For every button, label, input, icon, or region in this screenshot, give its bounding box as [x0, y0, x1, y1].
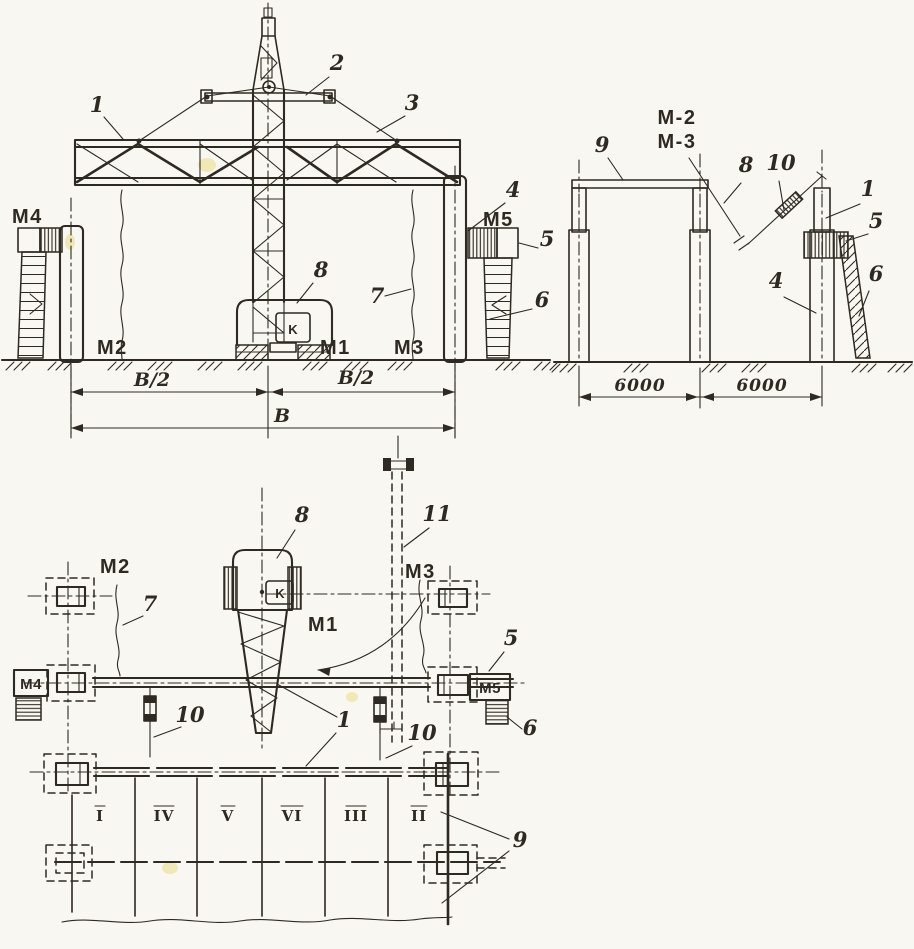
- anchor-block-m2: [28, 578, 112, 614]
- front-elevation-view: B/2 B/2 B M4 M2 M5: [2, 3, 558, 438]
- callout-5-plan: 5: [504, 625, 519, 650]
- callout-1-plan: 1: [337, 707, 352, 732]
- winch-box-m4-plan: M4: [14, 670, 48, 720]
- callout-7-front: 7: [370, 283, 385, 308]
- tie-rod-left: [144, 687, 156, 757]
- bay-number-1: I: [96, 807, 104, 825]
- crane-erection-drawing-sheet: B/2 B/2 B M4 M2 M5: [0, 0, 914, 949]
- bay-number-5: III: [344, 807, 368, 825]
- mark-m4-plan: M4: [20, 676, 42, 693]
- side-elevation-view: 6000 6000 9 M-2 M-3 8 10 1 5 4 6: [552, 107, 912, 408]
- mark-m4-front: M4: [12, 206, 43, 228]
- callout-6-plan: 6: [523, 715, 538, 740]
- dimension-lines-front: B/2 B/2 B: [71, 364, 455, 438]
- slewing-arc: [317, 598, 425, 676]
- bay-number-2: IV: [154, 807, 175, 825]
- mark-m3-plan: M3: [405, 561, 436, 583]
- callout-2-front: 2: [329, 50, 345, 75]
- column-middle-side: [690, 188, 710, 362]
- mark-m2-front: M2: [97, 337, 128, 359]
- callout-8-plan: 8: [294, 502, 310, 527]
- callout-7-plan: 7: [143, 591, 158, 616]
- dim-6000-right: 6000: [736, 376, 787, 396]
- tie-rod-right: [374, 687, 401, 760]
- bay-number-3: V: [221, 807, 235, 825]
- winch-assembly-m4: M4: [12, 198, 83, 438]
- dim-b2-left: B/2: [133, 369, 170, 391]
- callout-8-front: 8: [313, 257, 329, 282]
- callout-10-plan-left: 10: [175, 702, 205, 727]
- mark-m5-front: M5: [483, 209, 514, 231]
- bay-number-6: II: [411, 807, 427, 825]
- dim-6000-left: 6000: [614, 376, 665, 396]
- mark-m1-front: M1: [320, 337, 351, 359]
- mark-m5-plan: M5: [479, 680, 501, 697]
- callout-6-side: 6: [869, 261, 884, 286]
- callout-1-front: 1: [90, 92, 105, 117]
- callouts-side: 9 M-2 M-3 8 10 1 5 4 6: [595, 107, 884, 316]
- callout-5-side: 5: [869, 208, 884, 233]
- column-right-side: [810, 188, 834, 362]
- callout-9-plan: 9: [513, 827, 528, 852]
- winch-box-m5-plan: M5: [470, 674, 510, 724]
- ground-line-side: [552, 362, 912, 372]
- callout-9-side: 9: [595, 132, 610, 157]
- mark-m1-plan: M1: [308, 614, 339, 636]
- callout-8-side: 8: [738, 152, 754, 177]
- label-k-cab-front: K: [288, 322, 298, 337]
- dimension-lines-side: 6000 6000: [579, 366, 822, 408]
- mark-m3-front: M3: [394, 337, 425, 359]
- anchor-block-m3: [428, 581, 477, 614]
- dim-b-total: B: [273, 405, 290, 427]
- axis-lines-plan: [24, 436, 528, 795]
- anchor-block-grid-top-right: [424, 752, 478, 795]
- callout-4-side: 4: [769, 268, 784, 293]
- dim-b2-right: B/2: [337, 367, 374, 389]
- mark-m2-side: M-2: [658, 107, 697, 129]
- callout-1-side: 1: [861, 176, 876, 201]
- anchor-block-grid-top-left: [44, 754, 96, 793]
- column-left-side: [569, 188, 589, 362]
- label-k-cab-plan: K: [275, 586, 285, 601]
- callout-10-side: 10: [766, 150, 796, 175]
- building-grid: I IV V VI III II: [55, 754, 500, 924]
- callout-4-front: 4: [506, 177, 521, 202]
- callout-5-front: 5: [540, 226, 555, 251]
- mark-m3-side: M-3: [658, 131, 697, 153]
- bay-number-4: VI: [281, 807, 303, 825]
- callout-3-front: 3: [405, 90, 420, 115]
- tower-mast: [253, 3, 284, 356]
- mark-m2-plan: M2: [100, 556, 131, 578]
- engineering-drawing: B/2 B/2 B M4 M2 M5: [0, 0, 914, 949]
- plan-view: M4 M5: [14, 436, 538, 924]
- callout-11-plan: 11: [422, 501, 451, 526]
- winch-block-side: [804, 232, 870, 358]
- callouts-front: 1 2 3 4 5 6 7 8 M1 M3: [90, 50, 555, 359]
- callout-6-front: 6: [535, 287, 550, 312]
- crane-base-body: K: [236, 300, 332, 360]
- ground-line-front: [2, 360, 558, 370]
- callout-10-plan-right: 10: [407, 720, 437, 745]
